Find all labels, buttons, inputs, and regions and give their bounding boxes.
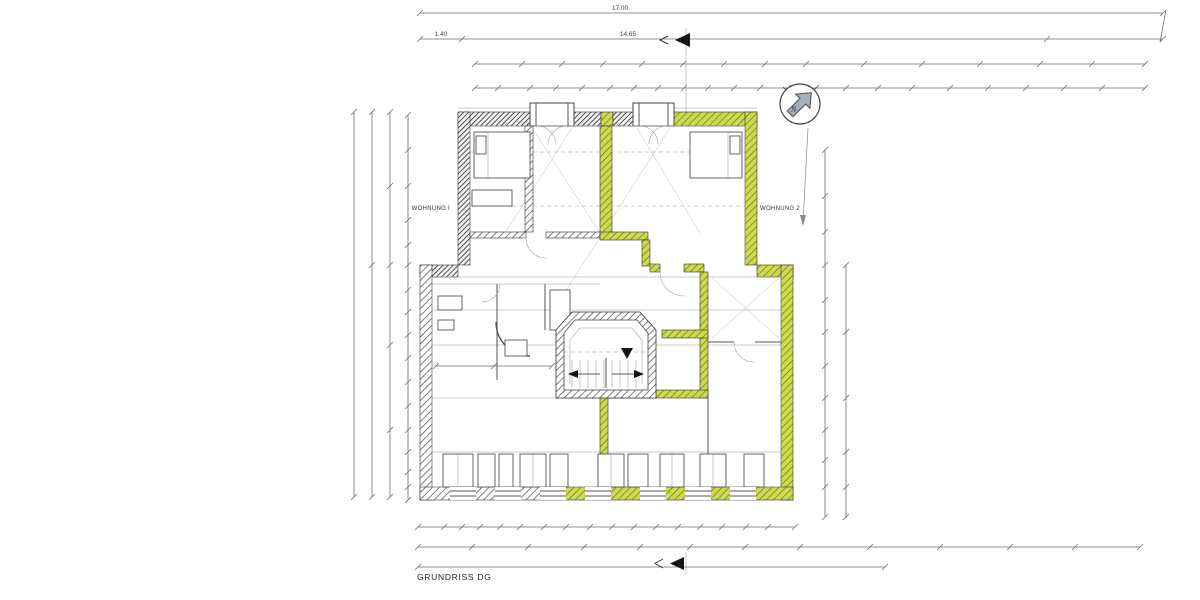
closet [550,454,568,487]
wardrobe [472,190,512,206]
closet [520,454,546,487]
apartment-1-label: WOHNUNG I [412,206,450,212]
dimension-chain-3 [472,61,1148,67]
bottom-dimension-chains [415,504,1143,575]
window [585,487,611,500]
apartment-2-label: WOHNUNG 2 [760,206,800,212]
bath-fixture [438,320,454,330]
window [450,487,476,500]
closet [660,454,684,487]
window [685,487,711,500]
survey-arrow [800,128,808,226]
closet [700,454,726,487]
dimension-value-main: 14.65 [620,31,637,38]
closet [628,454,648,487]
north-compass-icon: N [780,84,820,124]
closet [744,454,764,487]
dormer-window-right [560,103,700,300]
floor-plan-page: 17.00 1.40 14.65 N [0,0,1200,600]
dimension-chain-2 [417,10,1166,42]
floor-plan-drawing: 17.00 1.40 14.65 N [0,0,1200,600]
window [540,487,566,500]
closet-row [443,454,764,487]
building-plan [420,103,793,500]
right-dimension-chains [822,147,849,520]
section-marker-bottom-icon [655,552,686,575]
window [495,487,521,500]
plan-title: GRUNDRISS DG [417,572,492,582]
window [730,487,756,500]
closet [499,454,513,487]
dimension-value-total: 17.00 [612,5,629,12]
interior-dimension-chain [433,363,555,369]
north-letter: N [790,105,797,114]
dimension-chain-total [417,10,1166,16]
bottom-windows [450,487,756,500]
stair-core [556,312,656,398]
dimension-value-left: 1.40 [435,31,448,38]
closet [443,454,473,487]
closet [598,454,624,487]
left-dimension-chains [351,109,411,503]
window [640,487,666,500]
bath-fixture [438,296,462,310]
closet [478,454,495,487]
annotation-notes-bottom [428,504,768,515]
